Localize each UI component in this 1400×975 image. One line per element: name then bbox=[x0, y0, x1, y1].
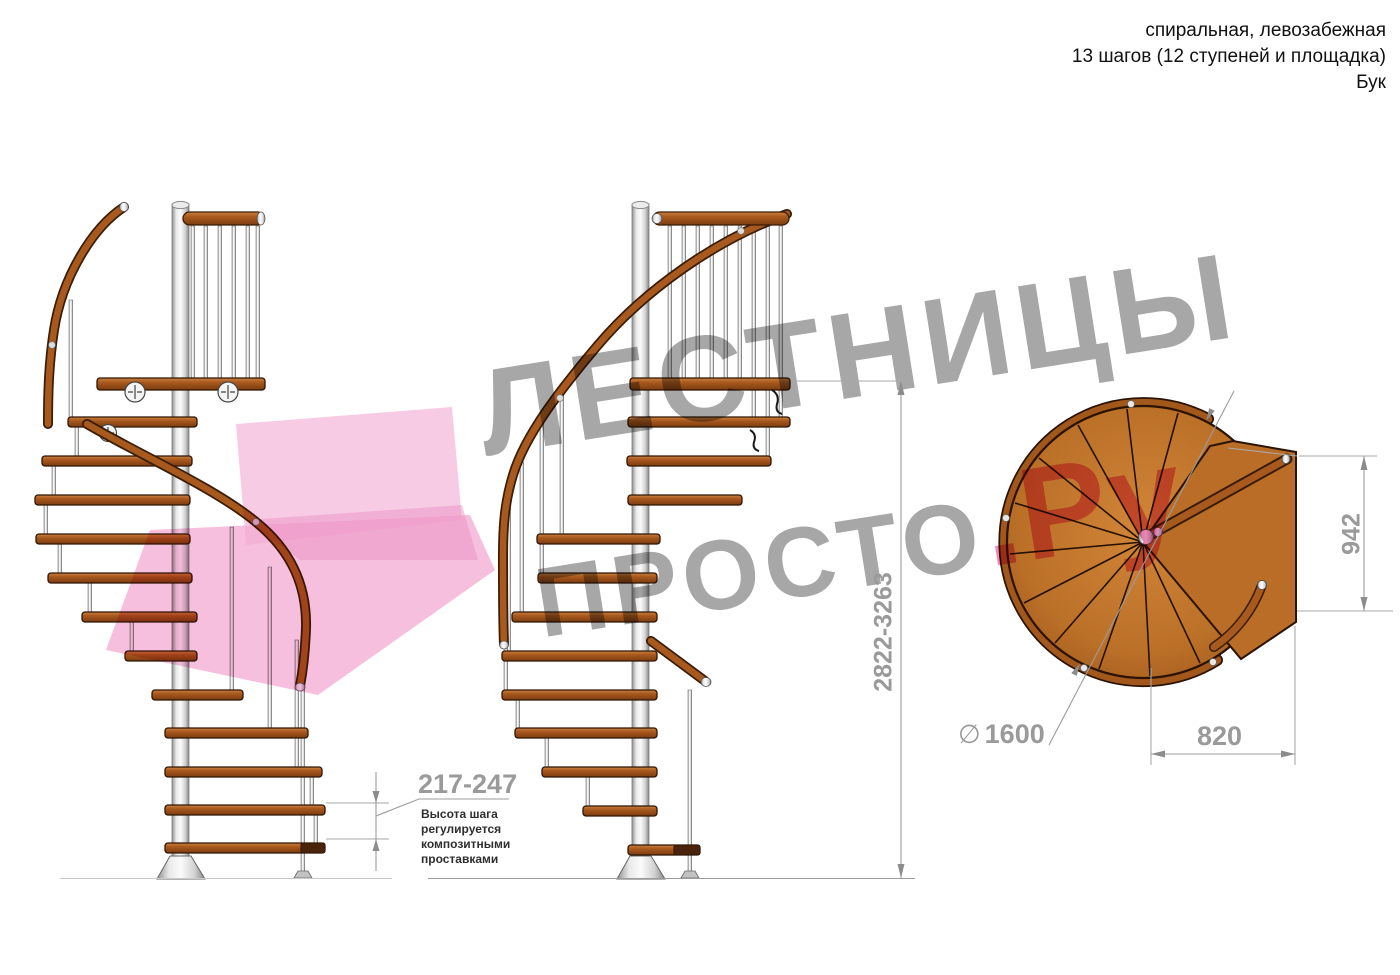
total-height-dimension: 2822-3263 bbox=[870, 572, 899, 692]
diameter-dimension: ∅1600 bbox=[958, 719, 1045, 750]
title-line-type: спиральная, левозабежная bbox=[1072, 18, 1386, 44]
landing-width-dimension: 942 bbox=[1338, 513, 1367, 555]
drawing-sheet: ЛЕСТНИЦЫ ПРОСТО.Ру bbox=[0, 0, 1400, 975]
step-height-note: Высота шага регулируется композитными пр… bbox=[421, 807, 521, 867]
landing-depth-dimension: 820 bbox=[1197, 721, 1242, 752]
title-line-steps: 13 шагов (12 ступеней и площадка) bbox=[1072, 44, 1386, 70]
title-line-material: Бук bbox=[1072, 70, 1386, 96]
title-block: спиральная, левозабежная 13 шагов (12 ст… bbox=[1072, 18, 1386, 96]
dimension-lines bbox=[0, 0, 1400, 975]
step-height-dimension: 217-247 bbox=[418, 769, 517, 800]
diameter-symbol: ∅ bbox=[958, 719, 985, 749]
